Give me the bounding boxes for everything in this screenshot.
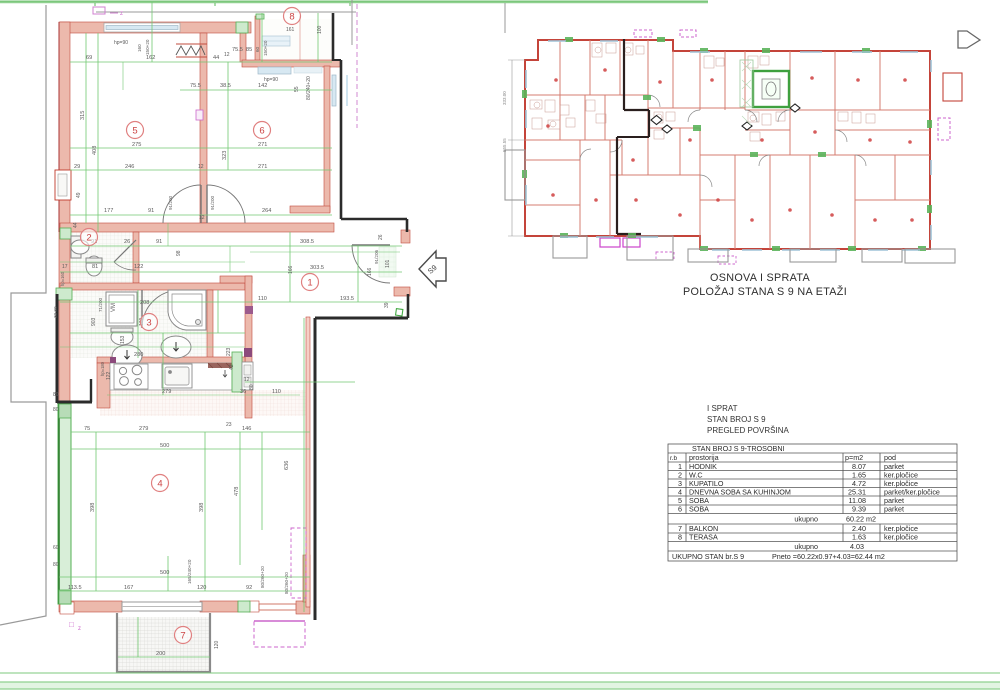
svg-text:60: 60 bbox=[255, 46, 260, 52]
svg-text:60: 60 bbox=[53, 545, 59, 551]
svg-text:8: 8 bbox=[289, 12, 294, 23]
svg-text:p=m2: p=m2 bbox=[845, 453, 863, 462]
svg-text:146: 146 bbox=[242, 426, 251, 432]
svg-text:500: 500 bbox=[160, 443, 169, 449]
svg-text:8: 8 bbox=[678, 533, 682, 542]
svg-text:23: 23 bbox=[226, 422, 232, 428]
svg-text:z: z bbox=[120, 11, 123, 17]
svg-text:VM: VM bbox=[111, 303, 117, 312]
svg-text:478: 478 bbox=[234, 487, 240, 496]
svg-text:903: 903 bbox=[91, 317, 97, 326]
svg-text:150+20: 150+20 bbox=[263, 40, 268, 56]
svg-text:208: 208 bbox=[140, 300, 149, 306]
svg-text:80/260+20: 80/260+20 bbox=[284, 572, 289, 594]
svg-text:80/260+20: 80/260+20 bbox=[260, 566, 265, 588]
svg-text:160: 160 bbox=[137, 44, 142, 52]
svg-text:91/206: 91/206 bbox=[374, 250, 379, 264]
svg-text:12: 12 bbox=[199, 215, 205, 221]
svg-text:271: 271 bbox=[258, 164, 267, 170]
svg-text:5: 5 bbox=[132, 126, 137, 137]
svg-text:110: 110 bbox=[258, 296, 267, 302]
svg-text:hp=160: hp=160 bbox=[60, 271, 65, 286]
svg-text:275: 275 bbox=[132, 142, 141, 148]
svg-text:408: 408 bbox=[92, 146, 98, 155]
svg-text:636: 636 bbox=[284, 461, 290, 470]
svg-text:69: 69 bbox=[86, 55, 92, 61]
svg-text:38.5: 38.5 bbox=[220, 83, 231, 89]
svg-text:POLOŽAJ STANA S 9 NA ETAŽI: POLOŽAJ STANA S 9 NA ETAŽI bbox=[683, 285, 847, 298]
svg-text:9.39: 9.39 bbox=[852, 505, 866, 514]
svg-text:98: 98 bbox=[176, 250, 182, 256]
svg-text:6: 6 bbox=[259, 126, 264, 137]
svg-text:12: 12 bbox=[224, 52, 230, 58]
svg-text:26: 26 bbox=[378, 234, 384, 240]
svg-text:120: 120 bbox=[214, 640, 220, 649]
svg-text:150+20: 150+20 bbox=[145, 39, 150, 55]
svg-text:29: 29 bbox=[74, 164, 80, 170]
svg-text:75.5: 75.5 bbox=[190, 83, 201, 89]
svg-text:110: 110 bbox=[272, 389, 281, 395]
svg-text:153: 153 bbox=[120, 335, 126, 344]
svg-text:□: □ bbox=[69, 620, 74, 629]
svg-text:200: 200 bbox=[156, 651, 165, 657]
svg-text:177: 177 bbox=[104, 208, 113, 214]
svg-text:ukupno: ukupno bbox=[794, 515, 818, 524]
svg-text:4: 4 bbox=[157, 479, 162, 490]
svg-text:398: 398 bbox=[199, 503, 205, 512]
svg-text:I SPRAT: I SPRAT bbox=[707, 404, 738, 413]
svg-text:81: 81 bbox=[92, 264, 98, 270]
svg-text:STAN BROJ S 9: STAN BROJ S 9 bbox=[707, 415, 766, 424]
svg-text:PREGLED POVRŠINA: PREGLED POVRŠINA bbox=[707, 426, 789, 435]
svg-text:120: 120 bbox=[197, 585, 206, 591]
svg-text:TERASA: TERASA bbox=[689, 533, 718, 542]
svg-text:60.22 m2: 60.22 m2 bbox=[846, 515, 876, 524]
svg-text:75.5: 75.5 bbox=[232, 47, 243, 53]
svg-text:91: 91 bbox=[156, 239, 162, 245]
svg-text:75: 75 bbox=[84, 426, 90, 432]
svg-text:1.63: 1.63 bbox=[852, 533, 866, 542]
svg-text:49: 49 bbox=[76, 192, 82, 198]
svg-text:12: 12 bbox=[198, 164, 204, 170]
svg-text:80: 80 bbox=[53, 392, 59, 398]
svg-text:161: 161 bbox=[286, 27, 295, 33]
svg-text:3: 3 bbox=[146, 318, 151, 329]
svg-text:398: 398 bbox=[90, 503, 96, 512]
svg-text:SOBA: SOBA bbox=[689, 505, 709, 514]
svg-text:166: 166 bbox=[367, 267, 373, 276]
svg-text:91: 91 bbox=[148, 208, 154, 214]
svg-text:80: 80 bbox=[53, 562, 59, 568]
svg-text:1: 1 bbox=[307, 278, 312, 289]
svg-text:555.55: 555.55 bbox=[502, 138, 507, 152]
svg-text:4.03: 4.03 bbox=[850, 542, 864, 551]
svg-text:39: 39 bbox=[384, 302, 390, 308]
svg-text:36: 36 bbox=[240, 389, 246, 395]
svg-text:92: 92 bbox=[246, 585, 252, 591]
svg-text:UKUPNO STAN br.S 9: UKUPNO STAN br.S 9 bbox=[672, 552, 744, 561]
svg-text:223: 223 bbox=[226, 347, 232, 356]
svg-text:315: 315 bbox=[80, 111, 86, 120]
svg-text:264: 264 bbox=[262, 208, 271, 214]
svg-text:30 30: 30 30 bbox=[53, 306, 58, 318]
svg-text:279: 279 bbox=[139, 426, 148, 432]
svg-text:80: 80 bbox=[249, 384, 255, 390]
svg-text:279: 279 bbox=[162, 389, 171, 395]
svg-text:7: 7 bbox=[180, 631, 185, 642]
svg-text:91/200: 91/200 bbox=[210, 196, 215, 210]
svg-text:12: 12 bbox=[244, 377, 250, 383]
svg-text:6: 6 bbox=[678, 505, 682, 514]
svg-text:z: z bbox=[78, 626, 81, 632]
svg-text:166: 166 bbox=[288, 265, 294, 274]
svg-text:193.5: 193.5 bbox=[340, 296, 354, 302]
svg-text:165/240+20: 165/240+20 bbox=[187, 559, 192, 584]
svg-text:122: 122 bbox=[106, 371, 112, 380]
svg-text:hp=90: hp=90 bbox=[114, 40, 128, 46]
svg-text:85: 85 bbox=[246, 47, 252, 53]
svg-text:271: 271 bbox=[258, 142, 267, 148]
svg-text:91/200: 91/200 bbox=[168, 196, 173, 210]
svg-text:323: 323 bbox=[222, 151, 228, 160]
svg-text:303.5: 303.5 bbox=[310, 265, 324, 271]
svg-text:142: 142 bbox=[258, 83, 267, 89]
svg-text:parket: parket bbox=[884, 505, 904, 514]
svg-text:167: 167 bbox=[124, 585, 133, 591]
svg-text:STAN BROJ S 9-TROSOBNI: STAN BROJ S 9-TROSOBNI bbox=[692, 444, 785, 453]
svg-text:333.00: 333.00 bbox=[502, 91, 507, 105]
svg-text:OSNOVA I SPRATA: OSNOVA I SPRATA bbox=[710, 272, 810, 284]
svg-text:pod: pod bbox=[884, 453, 896, 462]
svg-text:ukupno: ukupno bbox=[794, 542, 818, 551]
svg-text:r.b: r.b bbox=[670, 455, 678, 462]
svg-text:42: 42 bbox=[229, 364, 235, 370]
svg-text:113.5: 113.5 bbox=[68, 585, 82, 591]
svg-text:2: 2 bbox=[86, 233, 91, 244]
svg-text:ker.pločice: ker.pločice bbox=[884, 533, 918, 542]
svg-text:80: 80 bbox=[53, 407, 59, 413]
svg-text:308.5: 308.5 bbox=[300, 239, 314, 245]
svg-text:500: 500 bbox=[160, 570, 169, 576]
svg-text:44: 44 bbox=[73, 222, 79, 228]
svg-text:44: 44 bbox=[213, 55, 219, 61]
svg-text:122: 122 bbox=[134, 264, 143, 270]
svg-text:280: 280 bbox=[134, 352, 143, 358]
svg-text:55: 55 bbox=[294, 86, 300, 92]
svg-text:hp=180: hp=180 bbox=[100, 361, 105, 376]
svg-text:prostorija: prostorija bbox=[689, 453, 719, 462]
svg-text:80/240+20: 80/240+20 bbox=[306, 76, 312, 100]
svg-text:hp=90: hp=90 bbox=[264, 77, 278, 83]
svg-text:17: 17 bbox=[62, 264, 68, 270]
svg-text:100: 100 bbox=[317, 25, 323, 34]
svg-text:Pneto =60.22x0.97+4.03=62.44 m: Pneto =60.22x0.97+4.03=62.44 m2 bbox=[772, 552, 885, 561]
svg-text:246: 246 bbox=[125, 164, 134, 170]
svg-text:26: 26 bbox=[124, 239, 130, 245]
svg-text:71/200: 71/200 bbox=[98, 298, 103, 312]
svg-text:101: 101 bbox=[385, 259, 391, 268]
